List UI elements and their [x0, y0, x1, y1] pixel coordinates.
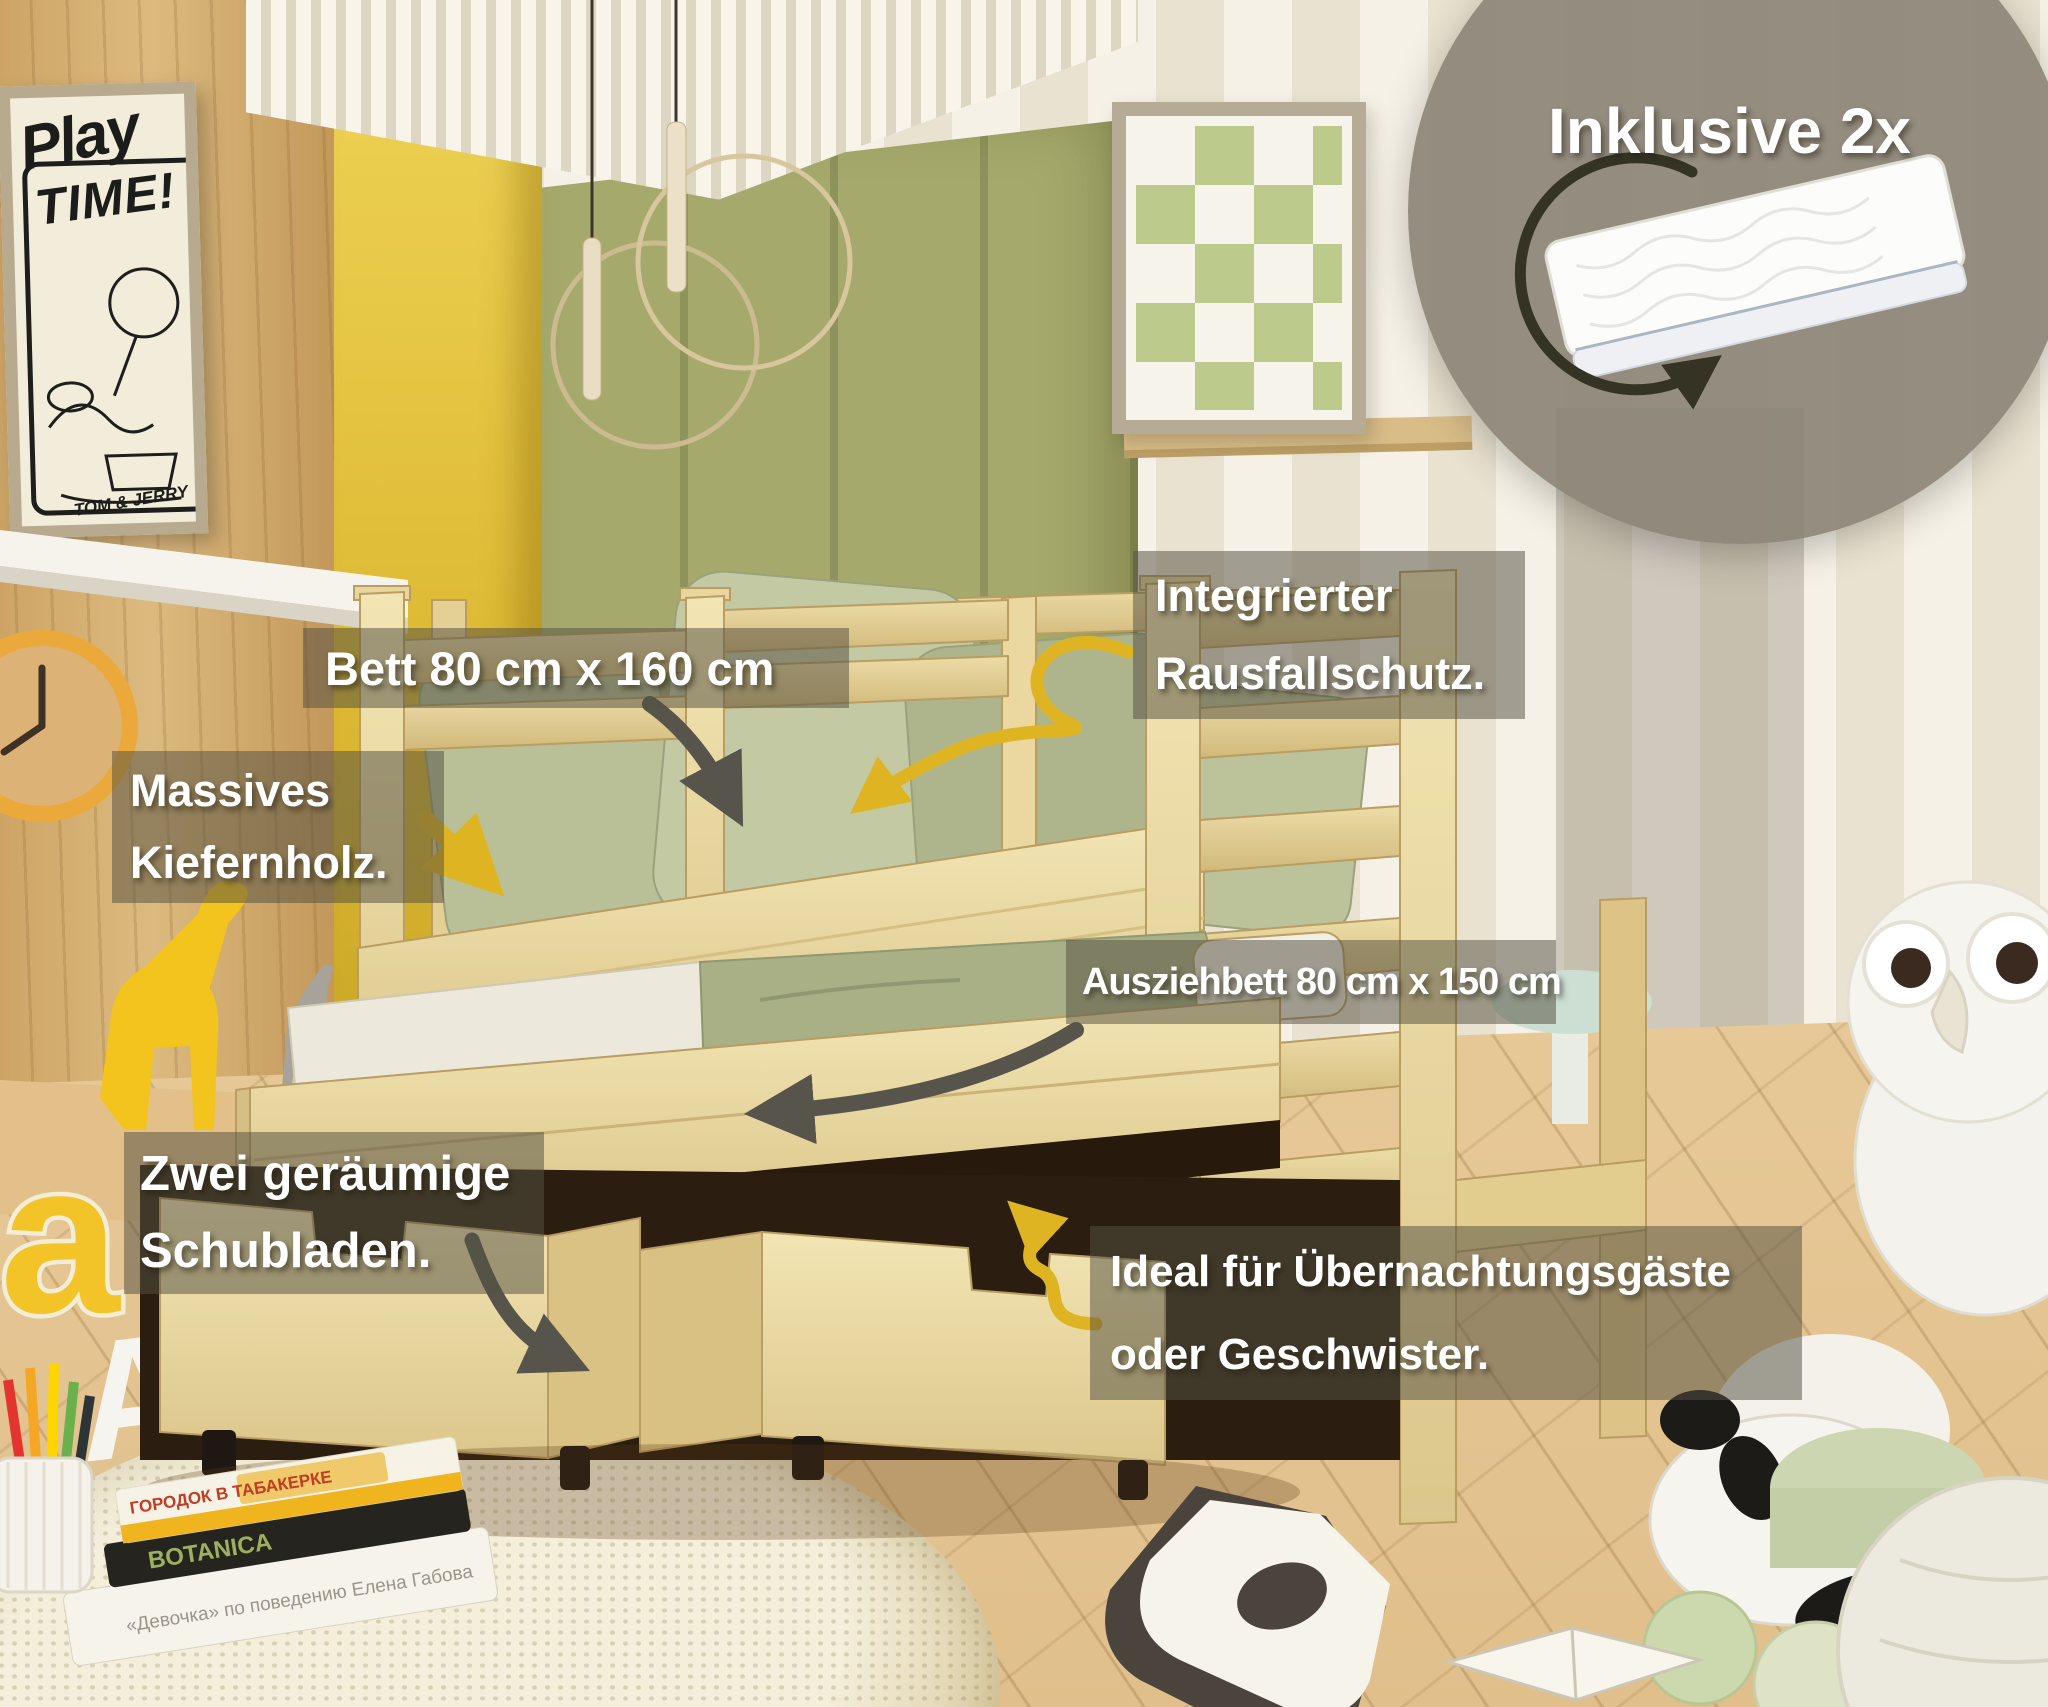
label-inklusive-2x: Inklusive 2x	[1548, 94, 1978, 168]
label-text: Kiefernholz.	[130, 827, 426, 899]
label-rausfallschutz: Integrierter Rausfallschutz.	[1133, 551, 1525, 719]
label-text: Integrierter	[1155, 557, 1503, 635]
arrow-ideal-icon	[1024, 1216, 1096, 1324]
label-text: Rausfallschutz.	[1155, 635, 1503, 713]
label-ideal-fuer: Ideal für Übernachtungsgäste oder Geschw…	[1090, 1226, 1802, 1400]
label-text: Bett 80 cm x 160 cm	[325, 641, 827, 696]
mattress-graphic	[1543, 153, 1972, 381]
label-text: Ideal für Übernachtungsgäste	[1110, 1230, 1782, 1313]
arrow-ausziehbett-icon	[772, 1030, 1076, 1112]
arrow-rausfallschutz-icon	[868, 643, 1128, 800]
label-bett-dimensions: Bett 80 cm x 160 cm	[303, 628, 849, 708]
product-photo-kids-trundle-bed: Play TIME! TOM & JERRY	[0, 0, 2048, 1707]
label-ausziehbett-dimensions: Ausziehbett 80 cm x 150 cm	[1066, 940, 1556, 1024]
label-text: Ausziehbett 80 cm x 150 cm	[1082, 961, 1540, 1004]
label-schubladen: Zwei geräumige Schubladen.	[124, 1132, 544, 1294]
arrow-bett-icon	[650, 704, 730, 802]
label-text: oder Geschwister.	[1110, 1313, 1782, 1396]
label-text: Massives	[130, 755, 426, 827]
label-text: Zwei geräumige	[140, 1136, 528, 1213]
label-text: Schubladen.	[140, 1213, 528, 1290]
label-kiefernholz: Massives Kiefernholz.	[112, 751, 444, 903]
